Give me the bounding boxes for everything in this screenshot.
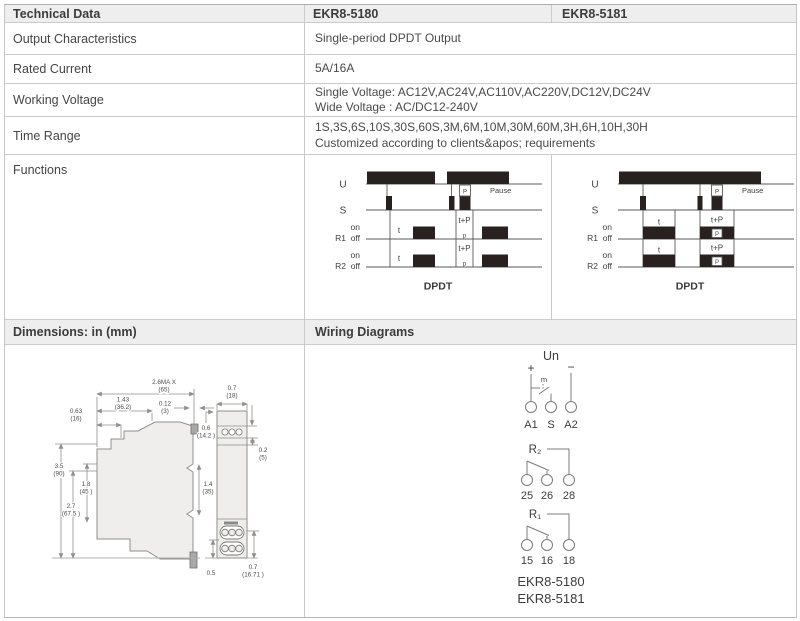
row-time-range: Time Range 1S,3S,6S,10S,30S,60S,3M,6M,10… (5, 116, 796, 154)
dpdt-caption: DPDT (676, 281, 705, 293)
row-functions: Functions (5, 154, 796, 319)
row-value: 1S,3S,6S,10S,30S,60S,3M,6M,10M,30M,60M,3… (305, 117, 796, 154)
terminal-15 (521, 540, 532, 551)
r2-label: R2 (587, 261, 598, 271)
un-label: Un (543, 349, 559, 363)
header-technical-data: Technical Data (5, 5, 305, 22)
label-26: 26 (540, 490, 552, 502)
terminal-25 (521, 475, 532, 486)
dim-07-in: 0.7 (228, 385, 237, 392)
row-value: Single-period DPDT Output (305, 23, 796, 54)
row-label: Working Voltage (5, 84, 305, 116)
header-model-5180: EKR8-5180 (305, 5, 552, 22)
dim-18-mm: (45 ) (80, 489, 93, 496)
t-label-r1: t (398, 226, 401, 235)
p-boxed-r1: P (715, 232, 719, 238)
spec-table: Technical Data EKR8-5180 EKR8-5181 Outpu… (4, 4, 797, 618)
r2-on-label: on (603, 250, 613, 260)
pause-p-label: P (715, 190, 719, 196)
terminal-a2 (565, 402, 576, 413)
row-output-characteristics: Output Characteristics Single-period DPD… (5, 22, 796, 54)
terminal-a1 (525, 402, 536, 413)
label-25: 25 (520, 490, 532, 502)
timing-diagram-5181-cell: U S on R1 off on R2 off t t t+P (552, 155, 800, 319)
signal-u-label: U (591, 180, 598, 191)
t-label-r2: t (398, 254, 401, 263)
drawings-row: 2.6MA X (65) 1.43 (36.2) 0.63 (16) 0.12 … (5, 344, 796, 617)
r2-off-label: off (351, 261, 361, 271)
dim-35-in: 3.5 (55, 463, 64, 470)
dimensions-drawing: 2.6MA X (65) 1.43 (36.2) 0.63 (16) 0.12 … (7, 347, 305, 615)
r1-label: R1 (335, 233, 346, 243)
pause-p-label: P (463, 190, 467, 196)
relay-side-profile (97, 422, 193, 559)
plus-sign: + (527, 361, 534, 375)
row-working-voltage: Working Voltage Single Voltage: AC12V,AC… (5, 83, 796, 116)
p-boxed-r2: P (715, 260, 719, 266)
wiring-title: Wiring Diagrams (305, 320, 796, 344)
row-label: Rated Current (5, 55, 305, 83)
relay-r1-label: R₁ (528, 509, 540, 521)
t-label-r2: t (658, 246, 661, 255)
dim-063-mm: (16) (70, 416, 81, 423)
r1-off-label: off (351, 233, 361, 243)
row-rated-current: Rated Current 5A/16A (5, 54, 796, 83)
datasheet-page: Technical Data EKR8-5180 EKR8-5181 Outpu… (0, 0, 800, 621)
relay-front-view (217, 411, 247, 558)
signal-s-label: S (340, 206, 347, 217)
value-line-2: Customized according to clients&apos; re… (315, 136, 796, 152)
pause-label: Pause (742, 186, 763, 195)
t-plus-p-label-r1: t+P (711, 216, 723, 225)
value-line-1: 1S,3S,6S,10S,30S,60S,3M,6M,10M,30M,60M,3… (315, 120, 796, 136)
pause-label: Pause (490, 186, 511, 195)
dim-14-mm: (35) (202, 489, 213, 496)
label-18: 18 (562, 555, 574, 567)
r1-off-label: off (603, 233, 613, 243)
label-16: 16 (540, 555, 552, 567)
dim-14-in: 1.4 (204, 481, 213, 488)
dim-06-mm: (14.2 ) (197, 433, 215, 440)
dimensions-drawing-cell: 2.6MA X (65) 1.43 (36.2) 0.63 (16) 0.12 … (5, 345, 305, 617)
dim-012-mm: (3) (161, 408, 169, 415)
dim-07b-in: 0.7 (249, 564, 258, 571)
dim-07-mm: (18) (226, 393, 237, 400)
signal-u-label: U (339, 180, 346, 191)
terminal-18 (563, 540, 574, 551)
row-value: Single Voltage: AC12V,AC24V,AC110V,AC220… (305, 84, 796, 116)
relay-r2-label: R₂ (528, 444, 541, 456)
minus-sign: − (567, 360, 574, 374)
value-line-2: Wide Voltage : AC/DC12-240V (315, 100, 796, 116)
r1-on-label: on (603, 222, 613, 232)
t-plus-p-label-r1: t+P (458, 216, 470, 225)
dpdt-caption: DPDT (424, 281, 453, 293)
a2-label: A2 (564, 419, 577, 431)
t-label-r1: t (658, 218, 661, 227)
t-plus-p-label-r2: t+P (711, 244, 723, 253)
timing-diagram-5181: U S on R1 off on R2 off t t t+P (562, 161, 800, 311)
row-label: Time Range (5, 117, 305, 154)
dim-012-in: 0.12 (159, 401, 172, 408)
section-band: Dimensions: in (mm) Wiring Diagrams (5, 319, 796, 344)
r1-on-label: on (351, 222, 361, 232)
signal-s-label: S (592, 206, 599, 217)
dim-max-in: 2.6MA X (152, 379, 177, 386)
terminal-28 (563, 475, 574, 486)
r2-label: R2 (335, 261, 346, 271)
dim-06-in: 0.6 (202, 425, 211, 432)
dim-143-in: 1.43 (117, 397, 130, 404)
timing-diagram-5180-cell: U S on R1 off on R2 off t t t+P (305, 155, 552, 319)
dim-max-mm: (65) (158, 387, 169, 394)
timing-diagram-5180: U S on R1 off on R2 off t t t+P (310, 161, 554, 311)
r2-off-label: off (603, 261, 613, 271)
header-model-5181: EKR8-5181 (552, 5, 796, 22)
t-plus-p-label-r2: t+P (458, 244, 470, 253)
table-header-row: Technical Data EKR8-5180 EKR8-5181 (5, 5, 796, 22)
dim-27-mm: (67.5 ) (62, 511, 80, 518)
model-name-5180: EKR8-5180 (517, 574, 584, 589)
manual-switch-label: m (540, 375, 546, 384)
label-15: 15 (520, 555, 532, 567)
din-clip-bottom-tab (190, 552, 197, 568)
model-name-5181: EKR8-5181 (517, 591, 584, 606)
row-value: 5A/16A (305, 55, 796, 83)
r2-on-label: on (351, 250, 361, 260)
r1-label: R1 (587, 233, 598, 243)
dim-143-mm: (36.2) (115, 404, 131, 411)
terminal-26 (541, 475, 552, 486)
value-line-1: Single Voltage: AC12V,AC24V,AC110V,AC220… (315, 85, 796, 101)
dim-07b-mm: (16.71 ) (242, 572, 264, 579)
wiring-diagram: Un + − m A1 S A2 R₂ 25 26 28 R₁ 15 16 (431, 345, 671, 617)
row-label: Output Characteristics (5, 23, 305, 54)
a1-label: A1 (524, 419, 537, 431)
dim-02-in: 0.2 (259, 447, 268, 454)
dim-02-mm: (5) (259, 455, 267, 462)
wiring-diagram-cell: Un + − m A1 S A2 R₂ 25 26 28 R₁ 15 16 (305, 345, 796, 617)
dim-35-mm: (90) (53, 471, 64, 478)
s-label: S (547, 419, 554, 431)
dim-05-in: 0.5 (207, 570, 216, 577)
dim-18-in: 1.8 (82, 481, 91, 488)
terminal-16 (541, 540, 552, 551)
dim-27-in: 2.7 (67, 503, 76, 510)
dim-063-in: 0.63 (70, 408, 83, 415)
dimensions-title: Dimensions: in (mm) (5, 320, 305, 344)
label-28: 28 (562, 490, 574, 502)
row-label: Functions (5, 155, 305, 319)
terminal-s (545, 402, 556, 413)
front-marking (224, 522, 238, 525)
